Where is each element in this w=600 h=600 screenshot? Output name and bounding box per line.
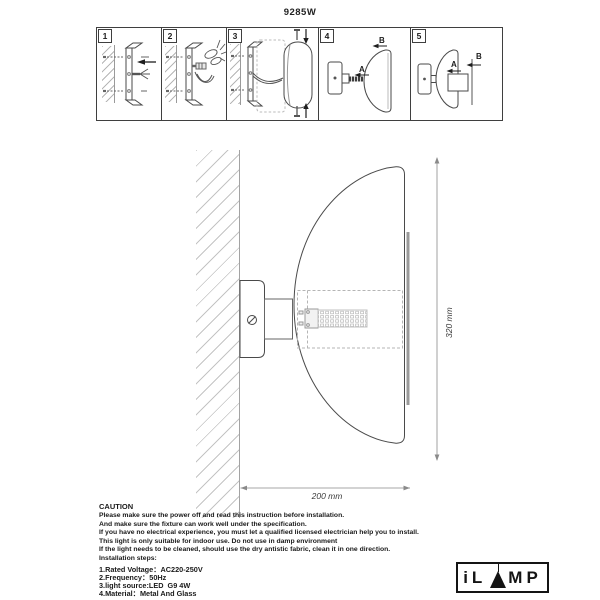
canopy-disc-icon bbox=[284, 42, 312, 108]
arm-icon bbox=[265, 299, 293, 339]
width-dimension-line bbox=[241, 486, 411, 491]
step-panel-5: 5 A B bbox=[410, 27, 503, 121]
wire-stub-icon bbox=[132, 69, 150, 79]
height-dimension-line bbox=[435, 157, 440, 461]
step-panel-2: 2 bbox=[161, 27, 227, 121]
caution-block: CAUTION Please make sure the power off a… bbox=[99, 502, 489, 598]
step-number: 4 bbox=[320, 29, 334, 43]
step-panel-4: 4 A B bbox=[318, 27, 411, 121]
caution-line: If you have no electrical experience, yo… bbox=[99, 529, 489, 538]
screw-icon bbox=[103, 57, 123, 91]
logo-text-right: MP bbox=[508, 569, 542, 586]
screw-icon bbox=[231, 56, 245, 90]
shade-side-icon bbox=[364, 50, 391, 112]
caution-line: Please make sure the power off and read … bbox=[99, 512, 489, 521]
lamp-holder-icon bbox=[299, 309, 318, 328]
wire-connector-icon bbox=[192, 63, 206, 69]
logo-text-left: iL bbox=[463, 569, 486, 586]
step-panel-1: 1 bbox=[96, 27, 162, 121]
logo-triangle-icon bbox=[490, 571, 506, 588]
step-number: 1 bbox=[98, 29, 112, 43]
installation-steps-strip: 1 bbox=[96, 27, 503, 121]
screw-icon bbox=[248, 316, 257, 325]
glass-edge-bar bbox=[407, 232, 410, 405]
caution-line: If the light needs to be cleaned, should… bbox=[99, 546, 489, 555]
step-number: 3 bbox=[228, 29, 242, 43]
caution-heading: CAUTION bbox=[99, 502, 489, 511]
mounting-bracket-icon bbox=[186, 43, 202, 105]
caution-line: This light is only suitable for indoor u… bbox=[99, 538, 489, 547]
direction-label-a: A bbox=[451, 60, 457, 69]
model-title: 9285W bbox=[0, 7, 600, 18]
canopy-outline-dashed bbox=[257, 40, 285, 112]
installation-steps-heading: Installation steps: bbox=[99, 555, 489, 564]
g9-bulb-icon bbox=[318, 310, 367, 327]
wall-hatch bbox=[196, 150, 239, 518]
wall-plate-icon bbox=[328, 62, 342, 94]
direction-label-b: B bbox=[379, 36, 385, 45]
step-number: 2 bbox=[163, 29, 177, 43]
width-dimension-label: 200 mm bbox=[297, 491, 357, 501]
shade-outline bbox=[294, 167, 405, 443]
spec-material: 4.Material：Metal And Glass bbox=[99, 590, 489, 598]
step-panel-3: 3 bbox=[226, 27, 319, 121]
step-number: 5 bbox=[412, 29, 426, 43]
spec-list: 1.Rated Voltage：AC220-250V 2.Frequency：5… bbox=[99, 566, 489, 598]
direction-label-b: B bbox=[476, 52, 482, 61]
screw-icon bbox=[166, 57, 183, 91]
threaded-rod-icon bbox=[349, 77, 363, 82]
ilamp-logo: iL MP bbox=[456, 562, 549, 593]
hands-twisting-icon bbox=[204, 40, 226, 66]
mounting-bracket-icon bbox=[248, 42, 262, 106]
wall-plate-icon bbox=[418, 64, 431, 94]
arrow-left-icon bbox=[137, 59, 156, 65]
socket-icon bbox=[431, 76, 436, 83]
arrow-down-icon bbox=[303, 29, 308, 44]
caution-line: And make sure the fixture can work well … bbox=[99, 521, 489, 530]
canopy-icon bbox=[240, 281, 265, 358]
page: { "title": "9285W", "steps": { "panels":… bbox=[0, 0, 600, 600]
direction-label-a: A bbox=[359, 65, 365, 74]
inner-housing-dashed bbox=[298, 291, 403, 349]
height-dimension-label: 320 mm bbox=[444, 307, 454, 338]
wires-icon bbox=[195, 72, 214, 82]
arrow-left-icon bbox=[467, 63, 482, 67]
inner-housing-icon bbox=[448, 74, 468, 91]
socket-icon bbox=[342, 74, 349, 83]
